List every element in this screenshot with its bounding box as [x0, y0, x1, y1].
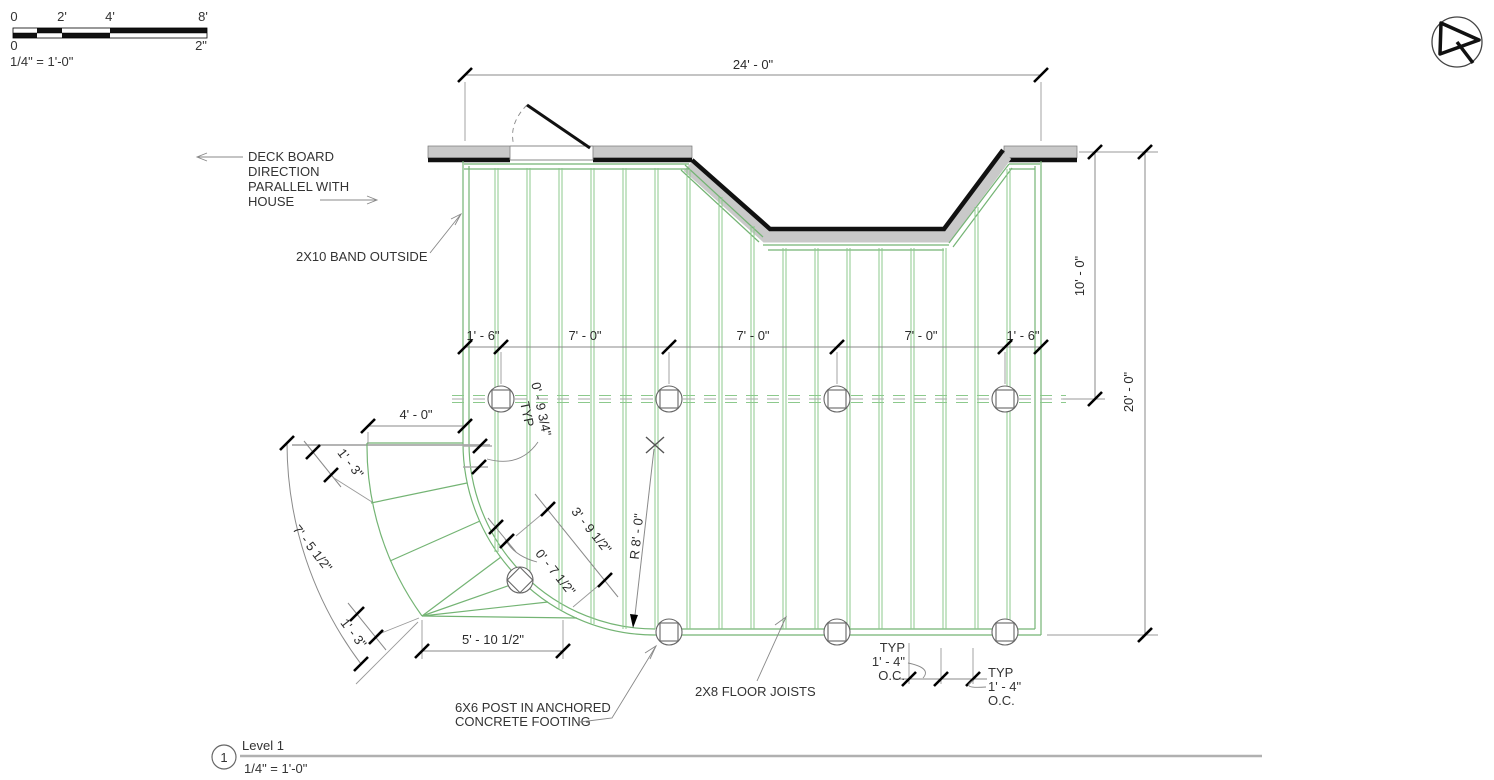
scale-bar-label: 1/4" = 1'-0" — [10, 54, 74, 69]
svg-text:DECK BOARD: DECK BOARD — [248, 149, 334, 164]
dim-overall-width: 24' - 0" — [733, 57, 774, 72]
dim-stair-diag: 3' - 9 1/2" — [568, 504, 614, 556]
deck-framing-plan-sheet: 0 2' 4' 8' 0 2" 1/4" = 1'-0" — [0, 0, 1494, 780]
svg-text:O.C.: O.C. — [988, 693, 1015, 708]
svg-text:TYP: TYP — [880, 640, 905, 655]
typ-oc-right-note: TYP 1' - 4" O.C. — [969, 665, 1022, 708]
leader-arrowhead-icon — [775, 617, 786, 630]
band-outside-note: 2X10 BAND OUTSIDE — [296, 214, 461, 264]
svg-text:O.C.: O.C. — [878, 668, 905, 683]
view-title: 1 Level 1 1/4" = 1'-0" — [212, 738, 1262, 776]
post-square — [828, 390, 846, 408]
svg-text:2X8 FLOOR JOISTS: 2X8 FLOOR JOISTS — [695, 684, 816, 699]
post-square — [996, 623, 1014, 641]
plan-drawing: 0 2' 4' 8' 0 2" 1/4" = 1'-0" — [0, 0, 1494, 780]
north-arrow-icon — [1432, 17, 1482, 67]
scale-tick-8ft: 8' — [198, 9, 208, 24]
dim-tread-lower: 1' - 3" — [337, 616, 369, 652]
dim-stair-bottom: 5' - 10 1/2" — [462, 632, 524, 647]
post-square — [996, 390, 1014, 408]
post-note: 6X6 POST IN ANCHORED CONCRETE FOOTING — [455, 646, 656, 729]
dim-tread-offset: 0' - 7 1/2" — [532, 546, 578, 598]
dim-stair-top: 4' - 0" — [399, 407, 432, 422]
view-name: Level 1 — [242, 738, 284, 753]
post-symbol — [992, 619, 1018, 645]
svg-text:6X6 POST IN ANCHORED: 6X6 POST IN ANCHORED — [455, 700, 611, 715]
dimension-tick — [354, 657, 368, 671]
scale-tick-0: 0 — [10, 9, 17, 24]
svg-text:PARALLEL WITH: PARALLEL WITH — [248, 179, 349, 194]
dimension-tick — [350, 607, 364, 621]
dim-string-4: 7' - 0" — [904, 328, 937, 343]
detail-number: 1 — [220, 750, 227, 765]
door-swing-arc — [513, 105, 527, 146]
svg-text:TYP: TYP — [988, 665, 1013, 680]
dim-tread-upper: 1' - 3" — [334, 446, 366, 482]
door-leaf — [527, 105, 590, 148]
dim-depth-to-beam: 10' - 0" — [1072, 255, 1087, 296]
post-square — [660, 390, 678, 408]
dimension-tick — [500, 534, 514, 548]
post-square — [660, 623, 678, 641]
dim-stair-arc: 7' - 5 1/2" — [290, 522, 336, 575]
post-symbol — [507, 567, 533, 593]
post-symbol — [824, 386, 850, 412]
svg-text:1' - 4": 1' - 4" — [872, 654, 905, 669]
post-symbol — [824, 619, 850, 645]
post-square — [828, 623, 846, 641]
typ-oc-left-note: TYP 1' - 4" O.C. — [872, 640, 926, 683]
dimension-tick — [306, 445, 320, 459]
post-symbol — [656, 619, 682, 645]
svg-text:2X10 BAND OUTSIDE: 2X10 BAND OUTSIDE — [296, 249, 428, 264]
radius-arrowhead — [630, 614, 638, 628]
door-opening — [510, 105, 593, 163]
scale-tick-2ft: 2' — [57, 9, 67, 24]
scale-bar: 0 2' 4' 8' 0 2" 1/4" = 1'-0" — [10, 9, 208, 69]
scale-tick-b0: 0 — [10, 38, 17, 53]
view-scale: 1/4" = 1'-0" — [244, 761, 308, 776]
svg-text:DIRECTION: DIRECTION — [248, 164, 320, 179]
post-square — [492, 390, 510, 408]
scale-tick-b2in: 2" — [195, 38, 207, 53]
house-band — [428, 105, 1077, 236]
svg-text:CONCRETE FOOTING: CONCRETE FOOTING — [455, 714, 591, 729]
posts-group — [488, 386, 1018, 645]
dim-overall-depth: 20' - 0" — [1121, 371, 1136, 412]
post-symbol — [992, 386, 1018, 412]
deck-board-direction-note: DECK BOARD DIRECTION PARALLEL WITH HOUSE — [197, 149, 377, 209]
post-symbol — [656, 386, 682, 412]
dim-string-2: 7' - 0" — [568, 328, 601, 343]
dim-string-3: 7' - 0" — [736, 328, 769, 343]
svg-text:HOUSE: HOUSE — [248, 194, 295, 209]
dim-radius: R 8' - 0" — [627, 512, 647, 560]
post-symbol — [488, 386, 514, 412]
svg-text:1' - 4": 1' - 4" — [988, 679, 1021, 694]
scale-tick-4ft: 4' — [105, 9, 115, 24]
